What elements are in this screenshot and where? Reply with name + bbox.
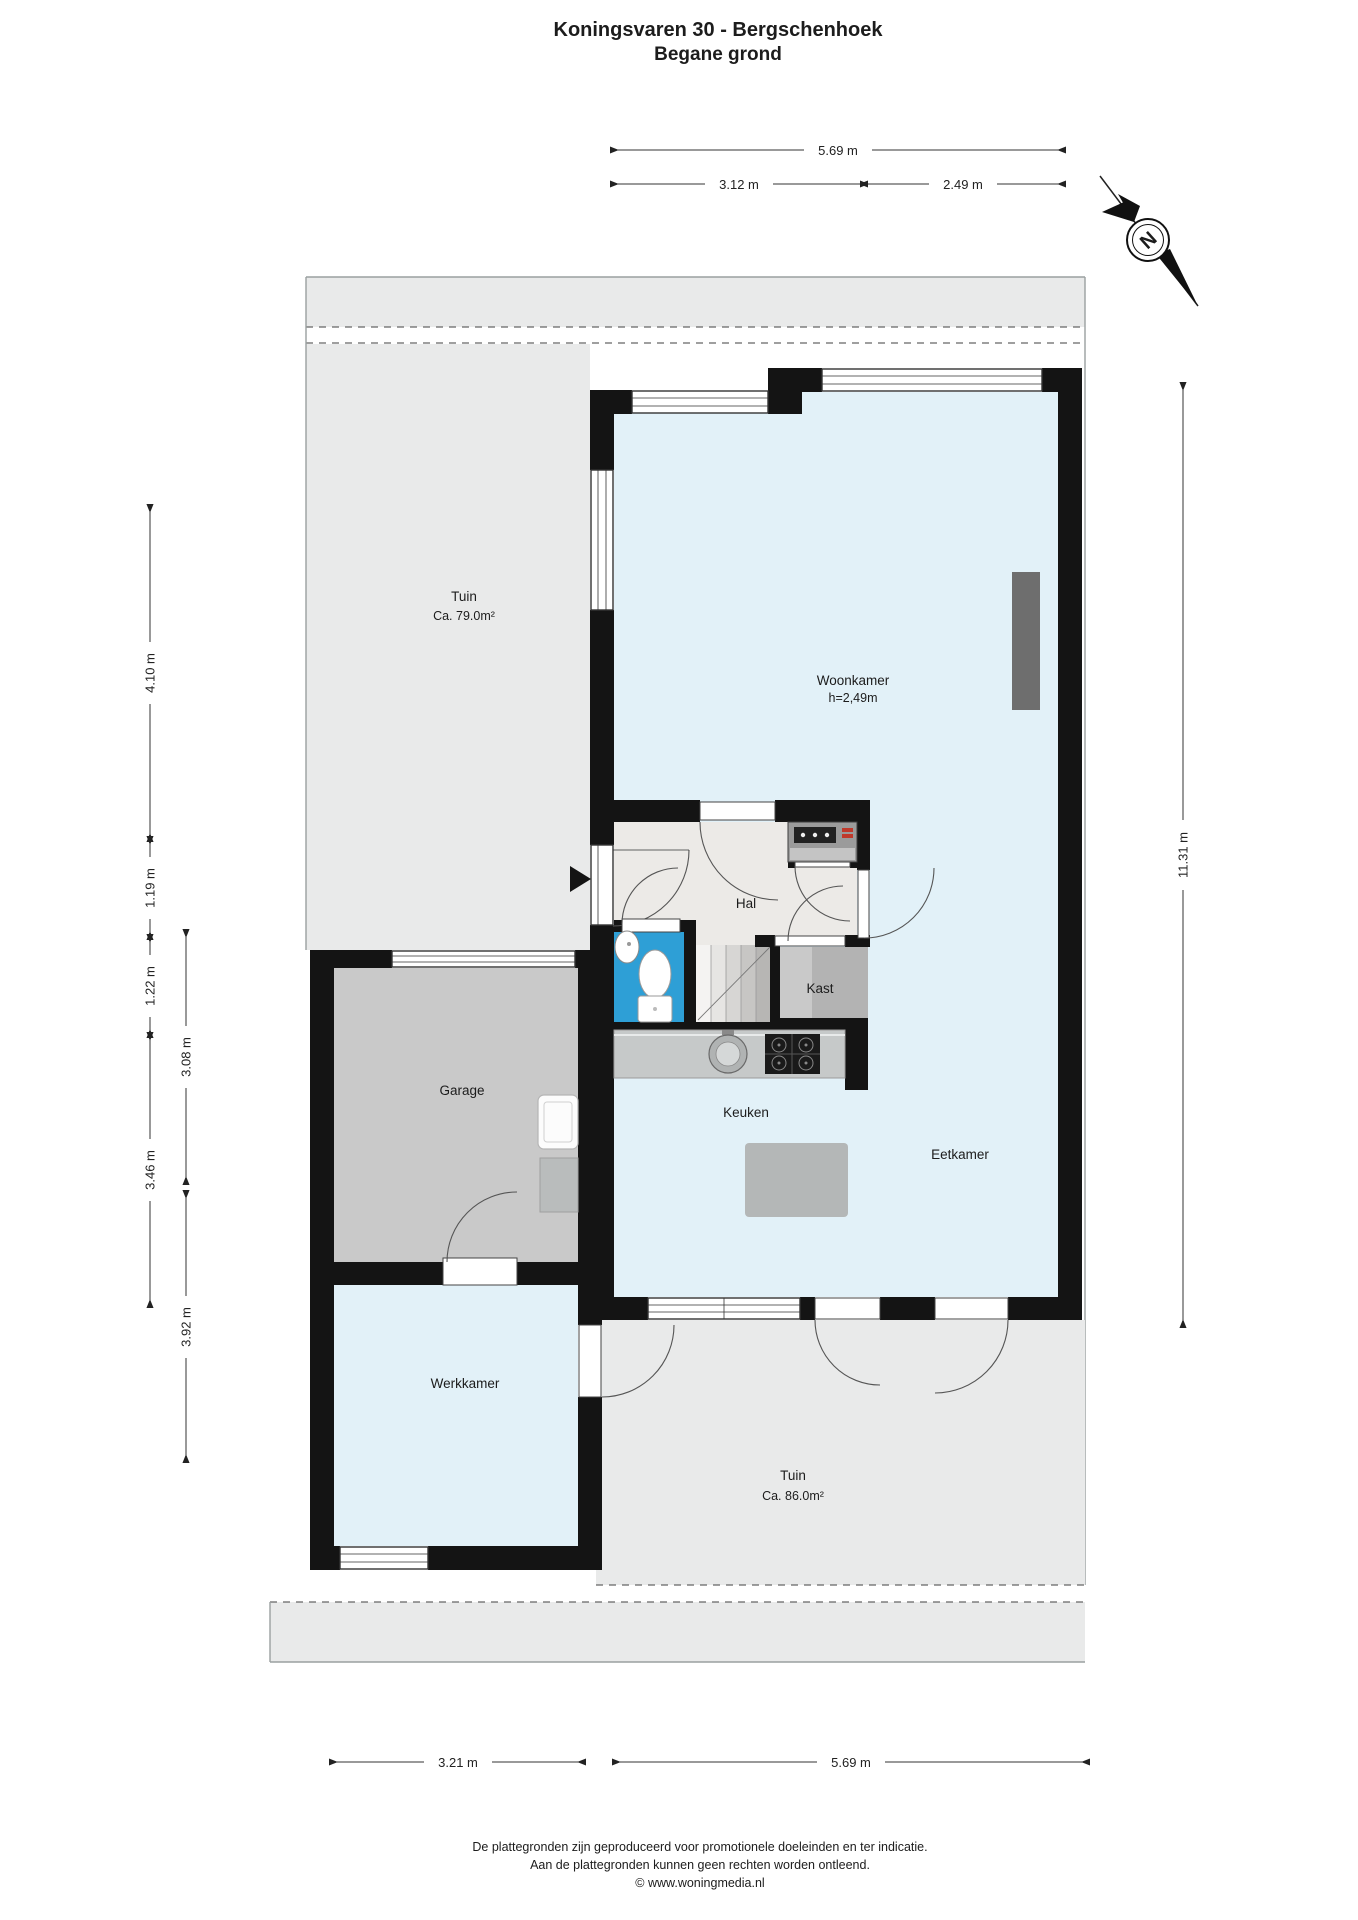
staircase: [696, 945, 771, 1022]
dim-left-1: 4.10 m: [143, 653, 158, 693]
floor-plan-canvas: Koningsvaren 30 - Bergschenhoek Begane g…: [0, 0, 1358, 1920]
page-title: Koningsvaren 30 - Bergschenhoek Begane g…: [554, 19, 884, 65]
dim-top-total: 5.69 m: [818, 143, 858, 158]
stove-icon: [765, 1034, 820, 1074]
dim-bottom-left: 3.21 m: [438, 1755, 478, 1770]
label-keuken: Keuken: [723, 1105, 769, 1120]
floor-plan-page: Koningsvaren 30 - Bergschenhoek Begane g…: [0, 0, 1358, 1920]
kitchen-counter: [614, 1030, 845, 1078]
window-office-south: [340, 1547, 428, 1569]
label-tuin-top: Tuin: [451, 589, 477, 604]
dim-left-2: 1.19 m: [143, 868, 158, 908]
dim-left-3: 1.22 m: [143, 966, 158, 1006]
window-west: [591, 470, 613, 610]
garden-strip-bottom: [270, 1602, 1085, 1662]
meter-cupboard: [788, 822, 857, 862]
dim-left-5: 3.08 m: [179, 1037, 194, 1077]
dim-bottom-right: 5.69 m: [831, 1755, 871, 1770]
window-top-left: [632, 391, 768, 413]
compass-rose-icon: N: [1100, 176, 1198, 306]
garden-left: [306, 344, 590, 950]
label-woonkamer: Woonkamer: [817, 673, 890, 688]
footer-line2: Aan de plattegronden kunnen geen rechten…: [530, 1858, 870, 1872]
label-tuin-top-area: Ca. 79.0m²: [433, 609, 495, 623]
garden-bottom: [596, 1320, 1085, 1585]
footer-copyright: © www.woningmedia.nl: [635, 1876, 764, 1890]
kitchen-island-table: [745, 1143, 848, 1217]
label-kast: Kast: [806, 981, 833, 996]
label-tuin-bottom: Tuin: [780, 1468, 806, 1483]
title-address: Koningsvaren 30 - Bergschenhoek: [554, 19, 884, 41]
footer-disclaimer: De plattegronden zijn geproduceerd voor …: [472, 1840, 927, 1890]
label-eetkamer: Eetkamer: [931, 1147, 989, 1162]
window-dining-south: [648, 1298, 800, 1319]
footer-line1: De plattegronden zijn geproduceerd voor …: [472, 1840, 927, 1854]
dim-left-6: 3.92 m: [179, 1307, 194, 1347]
dim-right: 11.31 m: [1176, 832, 1191, 878]
dim-top-right: 2.49 m: [943, 177, 983, 192]
dim-top-left: 3.12 m: [719, 177, 759, 192]
dim-left-4: 3.46 m: [143, 1150, 158, 1190]
label-garage: Garage: [439, 1083, 484, 1098]
window-top-right: [822, 369, 1042, 391]
label-tuin-bottom-area: Ca. 86.0m²: [762, 1489, 824, 1503]
office-floor: [334, 1285, 578, 1546]
tv-panel: [1012, 572, 1040, 710]
window-garage: [392, 951, 575, 967]
label-hal: Hal: [736, 896, 756, 911]
label-werkkamer: Werkkamer: [431, 1376, 500, 1391]
title-floor: Begane grond: [654, 44, 782, 65]
garden-strip-top: [306, 277, 1085, 327]
label-woonkamer-height: h=2,49m: [829, 691, 878, 705]
